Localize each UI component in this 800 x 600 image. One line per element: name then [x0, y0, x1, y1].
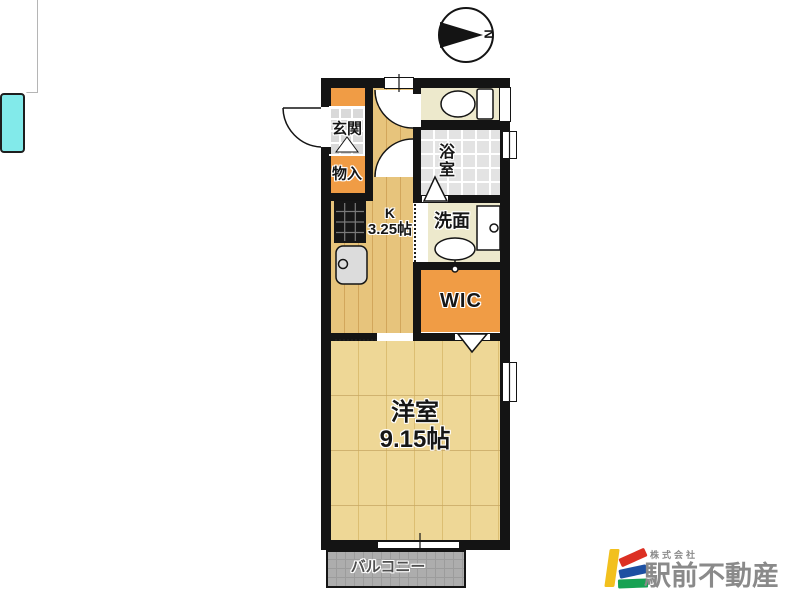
western-room-label: 洋室 9.15帖: [380, 400, 451, 454]
entrance-door-swing: [283, 108, 321, 147]
washbasin: [435, 238, 475, 272]
bathroom-label: 浴室: [435, 143, 453, 179]
storage-label: 物入: [332, 167, 362, 184]
plan-symbols: N: [0, 0, 800, 600]
kitchen-label-name: K: [368, 206, 412, 222]
kitchen-sink: [336, 246, 367, 284]
kitchen-label: K 3.25帖: [368, 206, 412, 238]
company-name: 駅前不動産: [644, 554, 779, 593]
wic-folding-door: [458, 334, 487, 352]
entrance-label: 玄関: [332, 122, 362, 139]
compass-north-label: N: [482, 29, 497, 38]
western-room-label-name: 洋室: [380, 400, 451, 427]
gas-stove: [334, 201, 366, 243]
bathroom-folding-door: [424, 177, 447, 201]
compass: N: [439, 8, 497, 62]
toilet-door-swing: [375, 90, 413, 128]
kitchen-label-size: 3.25帖: [368, 221, 412, 238]
kitchen-door-swing: [375, 139, 413, 177]
company-logo: 株式会社 駅前不動産: [598, 540, 793, 595]
western-room-label-size: 9.15帖: [380, 427, 451, 454]
washroom-label: 洗面: [434, 211, 470, 231]
wic-label: WIC: [440, 290, 482, 312]
washing-machine-pan: [477, 206, 500, 250]
toilet-fixture: [441, 89, 493, 119]
entrance-step-marker: [336, 137, 358, 152]
balcony-label: バルコニー: [351, 560, 426, 577]
